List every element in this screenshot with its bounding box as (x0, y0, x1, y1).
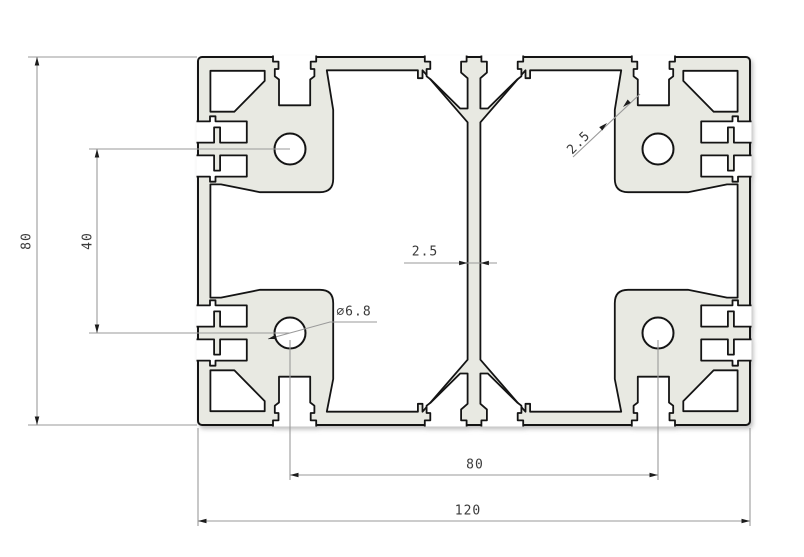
dim-label-width-120: 120 (455, 504, 481, 519)
dim-label-height-80: 80 (20, 232, 35, 250)
dim-label-hole-dia: ∅6.8 (336, 305, 371, 320)
profile-cross-section (197, 56, 752, 427)
dim-label-pitch-40: 40 (81, 232, 96, 250)
core-hole-top-right (643, 134, 674, 165)
dim-height-80 (28, 57, 197, 425)
drawing-canvas: 80 40 2.5 2.5 ∅6.8 80 120 (0, 0, 804, 557)
dim-label-web-2-5: 2.5 (412, 245, 438, 260)
technical-drawing-svg (0, 0, 804, 557)
dim-label-pitch-80: 80 (466, 458, 484, 473)
